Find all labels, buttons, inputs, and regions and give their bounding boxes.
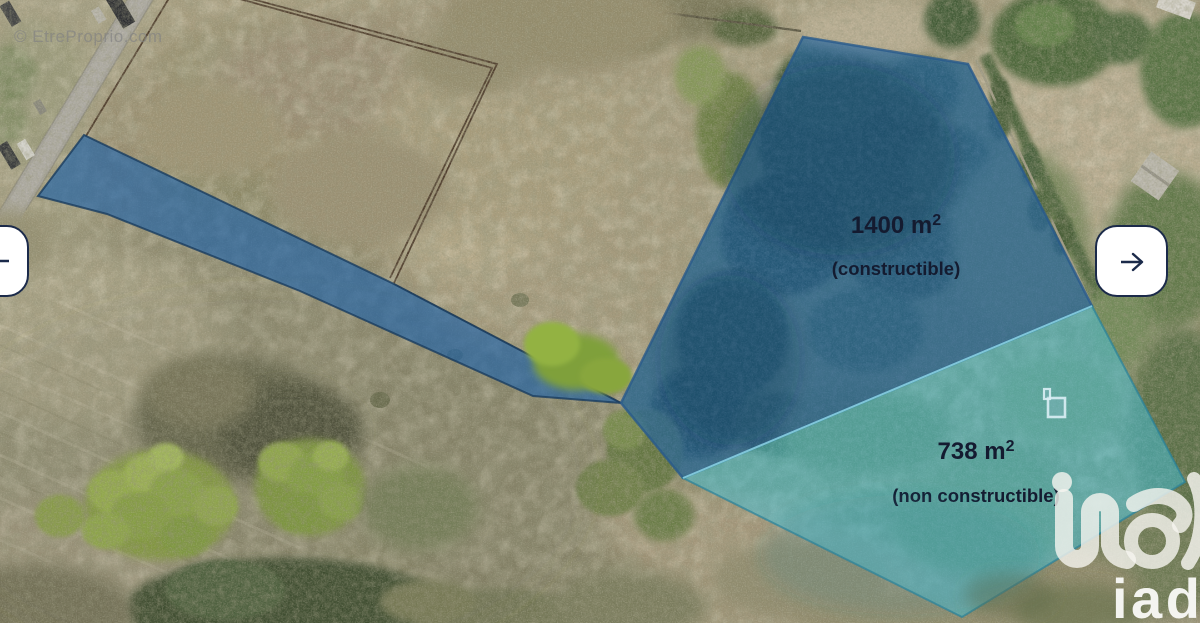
svg-text:iad: iad [1112,567,1200,623]
svg-text:738 m2: 738 m2 [938,438,1015,465]
svg-text:(constructible): (constructible) [832,258,960,279]
svg-text:© EtreProprio.com: © EtreProprio.com [14,27,163,46]
svg-text:1400 m2: 1400 m2 [851,212,941,239]
